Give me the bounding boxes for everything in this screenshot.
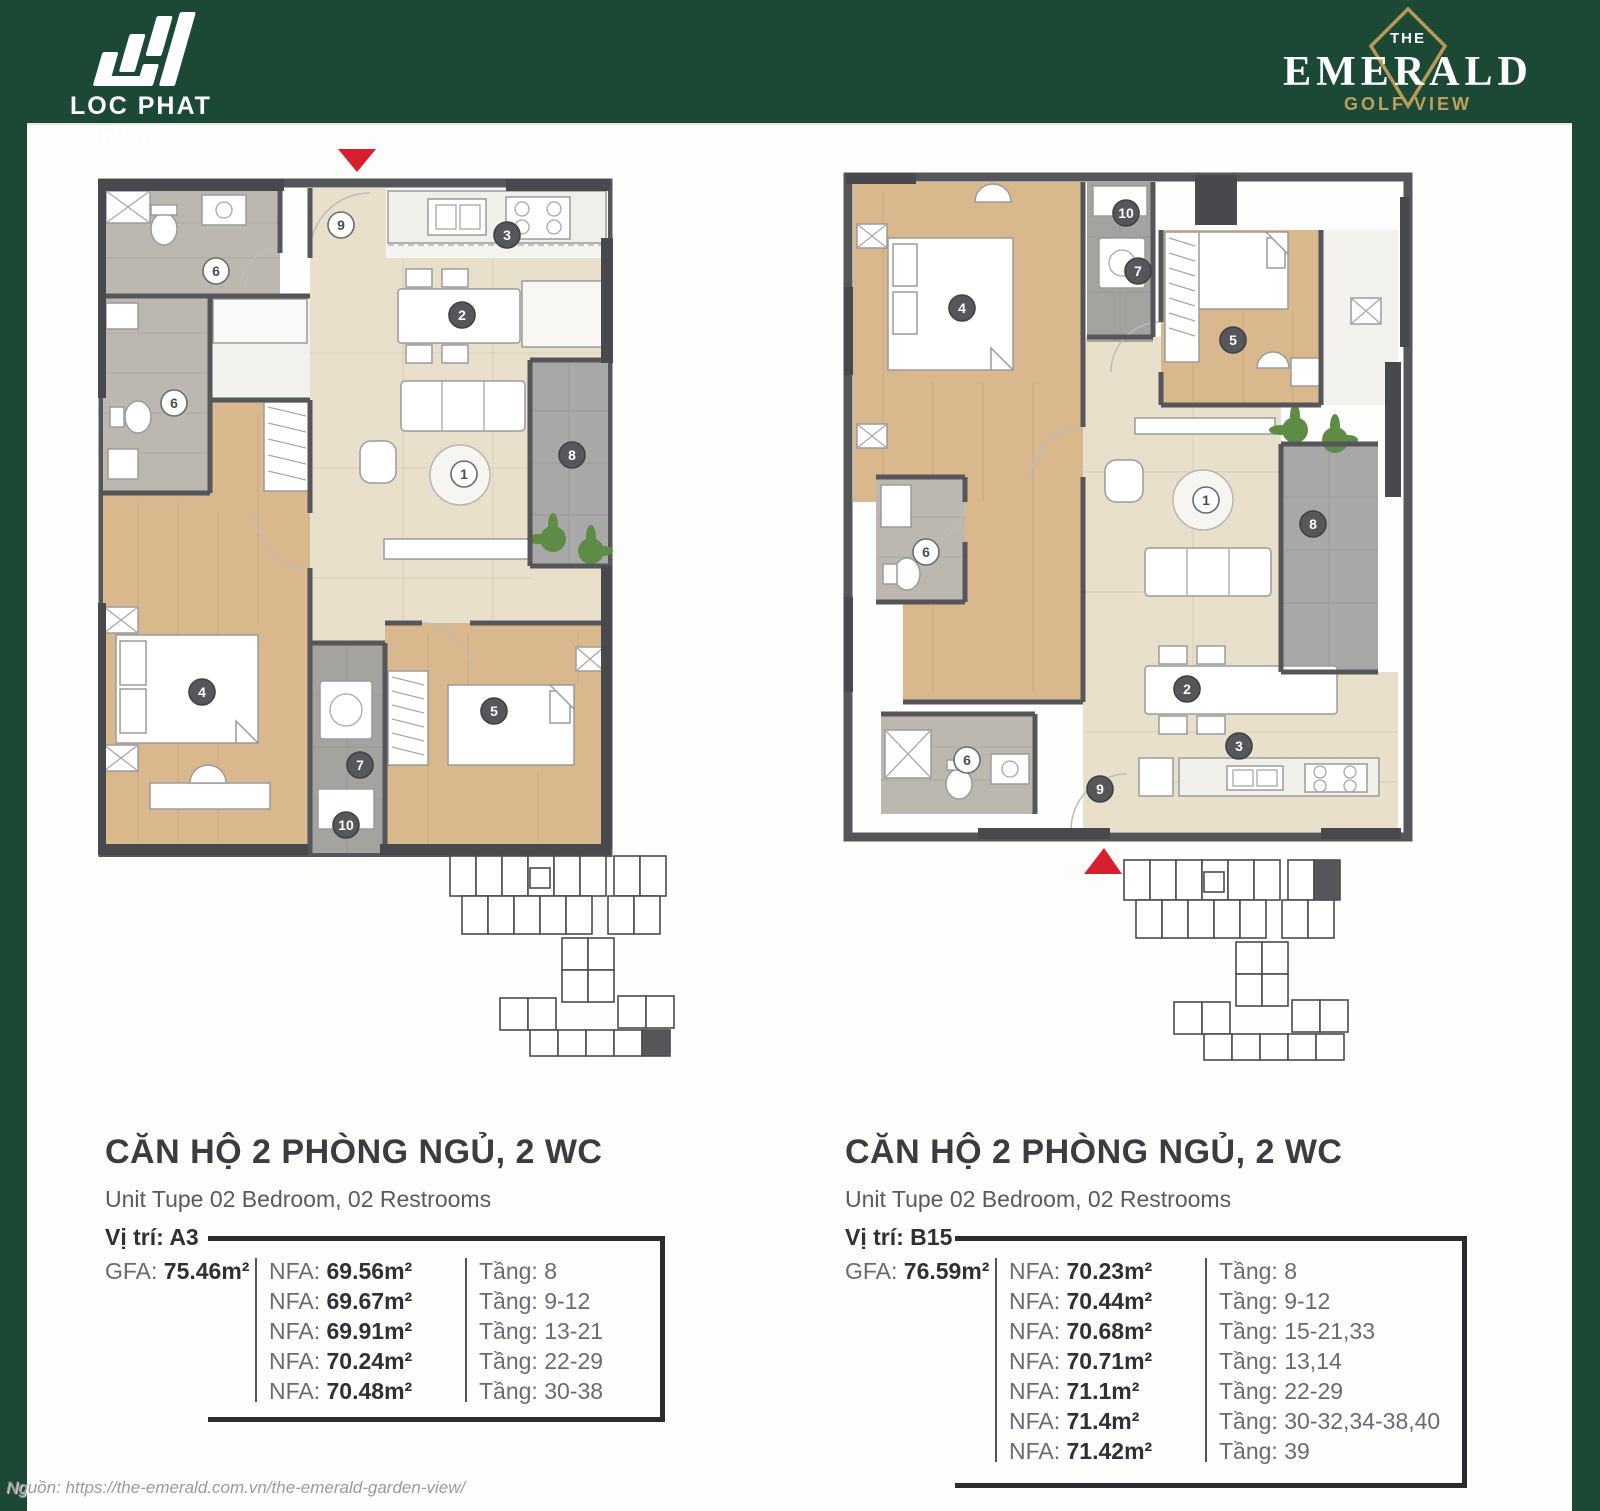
floor-row: Tầng: 30-32,34-38,40 xyxy=(1219,1406,1469,1436)
nfa-row: NFA: 69.67m² xyxy=(269,1286,465,1316)
svg-text:6: 6 xyxy=(212,263,220,279)
key-plan-a3-units xyxy=(450,856,674,1056)
selected-unit-marker xyxy=(1314,860,1340,900)
floor-plan-b15: 107456186239 xyxy=(843,172,1418,844)
brochure-page: LOC PHAT HUNG THE EMERALD GOLF VIEW xyxy=(0,0,1600,1511)
svg-text:1: 1 xyxy=(460,466,468,482)
floor-row: Tầng: 13,14 xyxy=(1219,1346,1469,1376)
floor-column: Tầng: 8Tầng: 9-12Tầng: 13-21Tầng: 22-29T… xyxy=(479,1256,729,1406)
room-marker: 6 xyxy=(913,539,939,565)
gfa-value: 75.46m² xyxy=(164,1258,250,1284)
svg-text:7: 7 xyxy=(1134,263,1142,279)
svg-text:6: 6 xyxy=(963,752,971,768)
floor-row: Tầng: 39 xyxy=(1219,1436,1469,1466)
svg-text:8: 8 xyxy=(1309,516,1317,532)
column-divider xyxy=(1205,1258,1207,1462)
room-marker: 6 xyxy=(203,258,229,284)
floor-row: Tầng: 8 xyxy=(1219,1256,1469,1286)
unit-a3-location: Vị trí: A3 xyxy=(105,1224,199,1251)
project-tagline: GOLF VIEW xyxy=(1272,94,1544,115)
nfa-row: NFA: 70.68m² xyxy=(1009,1316,1205,1346)
room-marker: 8 xyxy=(559,442,585,468)
floor-row: Tầng: 15-21,33 xyxy=(1219,1316,1469,1346)
floor-plan-a3: 932166845710 xyxy=(98,145,618,857)
gfa-label: GFA: xyxy=(845,1258,897,1284)
room-marker: 10 xyxy=(1113,200,1139,226)
svg-text:5: 5 xyxy=(1229,332,1237,348)
floor-row: Tầng: 22-29 xyxy=(1219,1376,1469,1406)
room-marker: 4 xyxy=(949,295,975,321)
developer-name: LOC PHAT HUNG xyxy=(26,92,256,150)
svg-text:7: 7 xyxy=(356,757,364,773)
svg-text:2: 2 xyxy=(458,307,466,323)
room-marker: 3 xyxy=(1226,733,1252,759)
svg-text:10: 10 xyxy=(1118,205,1134,221)
svg-text:4: 4 xyxy=(958,300,966,316)
column-divider xyxy=(995,1258,997,1462)
room-marker: 5 xyxy=(481,698,507,724)
room-marker: 7 xyxy=(1125,258,1151,284)
svg-text:6: 6 xyxy=(922,544,930,560)
room-marker: 10 xyxy=(333,812,359,838)
selected-unit-marker xyxy=(642,1030,670,1056)
room-marker: 3 xyxy=(494,222,520,248)
unit-b15-location: Vị trí: B15 xyxy=(845,1224,952,1251)
unit-b15-title: CĂN HỘ 2 PHÒNG NGỦ, 2 WC xyxy=(845,1133,1342,1172)
floor-row: Tầng: 8 xyxy=(479,1256,729,1286)
svg-text:8: 8 xyxy=(568,447,576,463)
floor-row: Tầng: 9-12 xyxy=(1219,1286,1469,1316)
room-marker: 1 xyxy=(451,461,477,487)
nfa-column: NFA: 70.23m²NFA: 70.44m²NFA: 70.68m²NFA:… xyxy=(1009,1256,1205,1466)
nfa-row: NFA: 70.23m² xyxy=(1009,1256,1205,1286)
unit-a3-title: CĂN HỘ 2 PHÒNG NGỦ, 2 WC xyxy=(105,1133,602,1172)
nfa-row: NFA: 70.44m² xyxy=(1009,1286,1205,1316)
unit-a3-spec-table: GFA: 75.46m² NFA: 69.56m²NFA: 69.67m²NFA… xyxy=(105,1256,729,1406)
room-marker: 8 xyxy=(1300,511,1326,537)
floor-row: Tầng: 13-21 xyxy=(479,1316,729,1346)
nfa-row: NFA: 71.1m² xyxy=(1009,1376,1205,1406)
gfa-cell: GFA: 75.46m² xyxy=(105,1256,255,1406)
room-marker: 9 xyxy=(1087,776,1113,802)
floor-column: Tầng: 8Tầng: 9-12Tầng: 15-21,33Tầng: 13,… xyxy=(1219,1256,1469,1466)
source-note: Nguồn: https://the-emerald.com.vn/the-em… xyxy=(6,1478,465,1498)
svg-text:10: 10 xyxy=(338,817,354,833)
unit-b15-subtitle: Unit Tupe 02 Bedroom, 02 Restrooms xyxy=(845,1186,1231,1213)
floor-row: Tầng: 22-29 xyxy=(479,1346,729,1376)
svg-text:5: 5 xyxy=(490,703,498,719)
column-divider xyxy=(255,1258,257,1402)
nfa-row: NFA: 70.71m² xyxy=(1009,1346,1205,1376)
project-logo: THE EMERALD GOLF VIEW xyxy=(1272,4,1544,120)
room-marker: 2 xyxy=(1174,676,1200,702)
svg-text:2: 2 xyxy=(1183,681,1191,697)
project-name: EMERALD xyxy=(1272,48,1544,96)
nfa-column: NFA: 69.56m²NFA: 69.67m²NFA: 69.91m²NFA:… xyxy=(269,1256,465,1406)
room-marker: 2 xyxy=(449,302,475,328)
svg-text:9: 9 xyxy=(1096,781,1104,797)
room-marker: 6 xyxy=(954,747,980,773)
unit-a3-subtitle: Unit Tupe 02 Bedroom, 02 Restrooms xyxy=(105,1186,491,1213)
key-plan-b15 xyxy=(1082,836,1402,1064)
key-plan-b15-units xyxy=(1124,860,1348,1060)
gfa-label: GFA: xyxy=(105,1258,157,1284)
nfa-row: NFA: 70.48m² xyxy=(269,1376,465,1406)
room-marker: 7 xyxy=(347,752,373,778)
developer-logo: LOC PHAT HUNG xyxy=(26,12,256,124)
svg-text:3: 3 xyxy=(503,227,511,243)
location-arrow-icon xyxy=(1084,848,1122,874)
nfa-row: NFA: 69.56m² xyxy=(269,1256,465,1286)
nfa-row: NFA: 69.91m² xyxy=(269,1316,465,1346)
nfa-row: NFA: 71.4m² xyxy=(1009,1406,1205,1436)
key-plan-a3 xyxy=(442,848,732,1063)
room-marker: 6 xyxy=(161,390,187,416)
room-marker: 1 xyxy=(1193,487,1219,513)
room-marker: 5 xyxy=(1220,327,1246,353)
column-divider xyxy=(465,1258,467,1402)
room-marker: 4 xyxy=(189,679,215,705)
svg-text:6: 6 xyxy=(170,395,178,411)
svg-text:9: 9 xyxy=(337,217,345,233)
unit-b15-spec-table: GFA: 76.59m² NFA: 70.23m²NFA: 70.44m²NFA… xyxy=(845,1256,1469,1466)
project-logo-the: THE xyxy=(1272,30,1544,47)
gfa-value: 76.59m² xyxy=(904,1258,990,1284)
entrance-arrow-icon xyxy=(338,149,376,172)
room-marker: 9 xyxy=(328,212,354,238)
developer-logo-mark xyxy=(66,12,216,90)
nfa-row: NFA: 70.24m² xyxy=(269,1346,465,1376)
svg-text:3: 3 xyxy=(1235,738,1243,754)
nfa-row: NFA: 71.42m² xyxy=(1009,1436,1205,1466)
svg-text:1: 1 xyxy=(1202,492,1210,508)
svg-text:4: 4 xyxy=(198,684,206,700)
gfa-cell: GFA: 76.59m² xyxy=(845,1256,995,1466)
floor-row: Tầng: 9-12 xyxy=(479,1286,729,1316)
floor-row: Tầng: 30-38 xyxy=(479,1376,729,1406)
